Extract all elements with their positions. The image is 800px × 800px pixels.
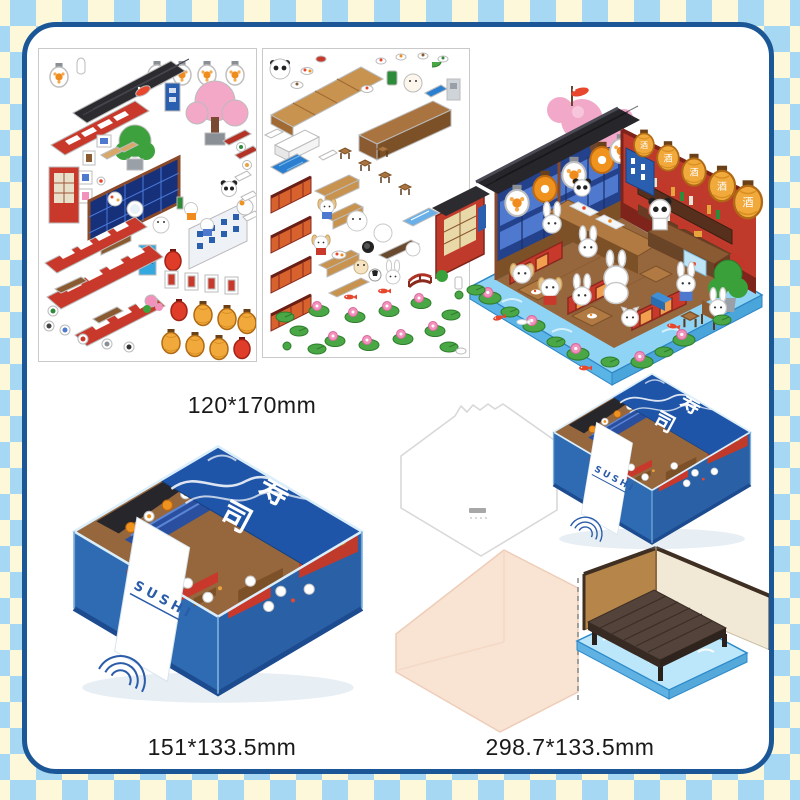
assembled-scene: 酒 酒 酒 酒 酒 bbox=[432, 62, 772, 394]
panda-sticker bbox=[270, 59, 290, 79]
fence-stickers bbox=[271, 177, 311, 331]
box-template-outline bbox=[393, 392, 565, 562]
size-label-base: 298.7*133.5mm bbox=[418, 734, 722, 761]
svg-text:酒: 酒 bbox=[689, 168, 698, 179]
product-showcase-image: { "labels": { "sticker_sheets": "120*170… bbox=[0, 0, 800, 800]
bridge-sticker bbox=[409, 275, 431, 287]
sticker-sheet-1 bbox=[38, 48, 257, 362]
svg-text:酒: 酒 bbox=[743, 196, 754, 209]
window-stickers bbox=[165, 271, 238, 294]
base-mat-template bbox=[396, 550, 578, 732]
size-label-sheets: 120*170mm bbox=[100, 392, 404, 419]
boxed-product bbox=[66, 438, 370, 704]
display-base bbox=[577, 548, 770, 699]
svg-text:酒: 酒 bbox=[640, 141, 648, 150]
svg-text:酒: 酒 bbox=[717, 181, 727, 193]
long-counter-sticker bbox=[271, 67, 383, 136]
svg-text:酒: 酒 bbox=[663, 154, 672, 165]
size-label-box: 151*133.5mm bbox=[70, 734, 374, 761]
entrance-kiosk bbox=[432, 186, 490, 282]
display-base-group bbox=[388, 540, 780, 740]
boxed-product-small bbox=[548, 368, 756, 550]
door-sticker bbox=[49, 167, 79, 223]
